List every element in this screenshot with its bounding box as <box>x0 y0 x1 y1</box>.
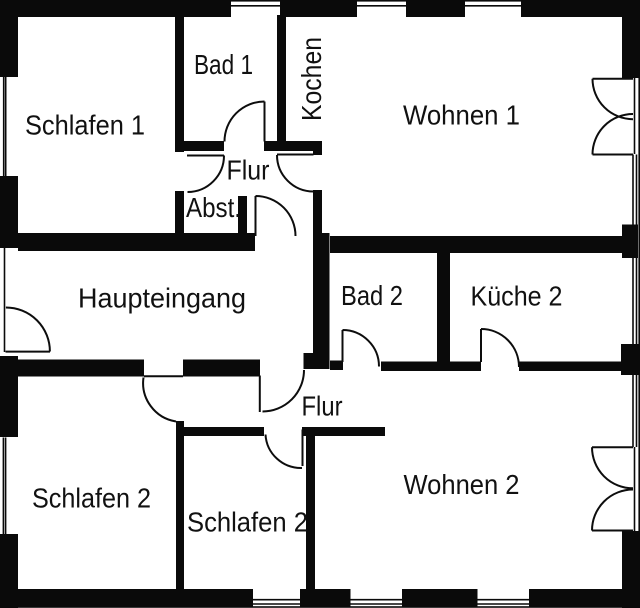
svg-text:Bad 2: Bad 2 <box>341 280 403 311</box>
svg-text:Schlafen 2: Schlafen 2 <box>187 507 308 538</box>
svg-text:Wohnen 2: Wohnen 2 <box>404 469 520 500</box>
svg-text:Kochen: Kochen <box>296 37 327 121</box>
svg-text:Flur: Flur <box>227 155 270 186</box>
svg-text:Küche 2: Küche 2 <box>471 281 563 312</box>
svg-text:Bad 1: Bad 1 <box>194 49 253 80</box>
svg-text:Wohnen 1: Wohnen 1 <box>403 100 520 131</box>
svg-text:Abst.: Abst. <box>186 192 241 223</box>
svg-text:Haupteingang: Haupteingang <box>78 283 246 314</box>
svg-text:Schlafen 1: Schlafen 1 <box>25 110 145 141</box>
svg-text:Flur: Flur <box>302 391 343 422</box>
svg-text:Schlafen 2: Schlafen 2 <box>32 483 151 514</box>
